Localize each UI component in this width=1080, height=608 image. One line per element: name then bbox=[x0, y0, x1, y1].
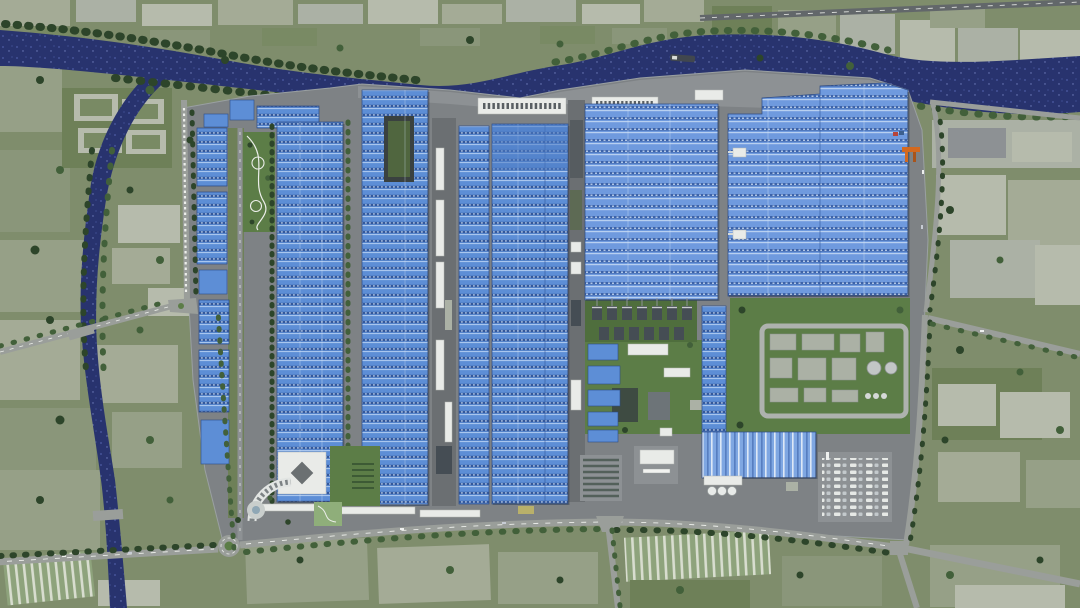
storage-sphere bbox=[708, 487, 717, 496]
factory-hall-4 bbox=[492, 124, 569, 504]
clarifier-tank bbox=[867, 361, 881, 375]
factory-hall-3 bbox=[459, 126, 489, 504]
parking-lot bbox=[818, 452, 892, 522]
west-edge-parking bbox=[184, 100, 187, 300]
gatehouse-building bbox=[634, 446, 678, 484]
entrance-roundabout bbox=[218, 535, 240, 557]
office-building bbox=[278, 452, 326, 494]
narrow-hall bbox=[702, 306, 726, 432]
branch-bridge bbox=[93, 509, 124, 521]
factory-hall-5 bbox=[585, 104, 719, 300]
storage-sphere bbox=[718, 487, 727, 496]
southeast-crossroad bbox=[890, 541, 908, 555]
south-garden bbox=[314, 502, 342, 526]
aerial-render bbox=[0, 0, 1080, 608]
factory-hall-west bbox=[277, 122, 344, 502]
factory-campus bbox=[183, 70, 928, 546]
sphere-canopy bbox=[704, 476, 742, 485]
scene-canvas bbox=[0, 0, 1080, 608]
clarifier-tank bbox=[885, 362, 897, 374]
factory-hall-east bbox=[728, 83, 909, 296]
storage-sphere bbox=[728, 487, 737, 496]
factory-hall-2 bbox=[362, 90, 429, 505]
service-lane-thin-buildings bbox=[432, 118, 456, 506]
blue-warehouse bbox=[702, 432, 816, 478]
